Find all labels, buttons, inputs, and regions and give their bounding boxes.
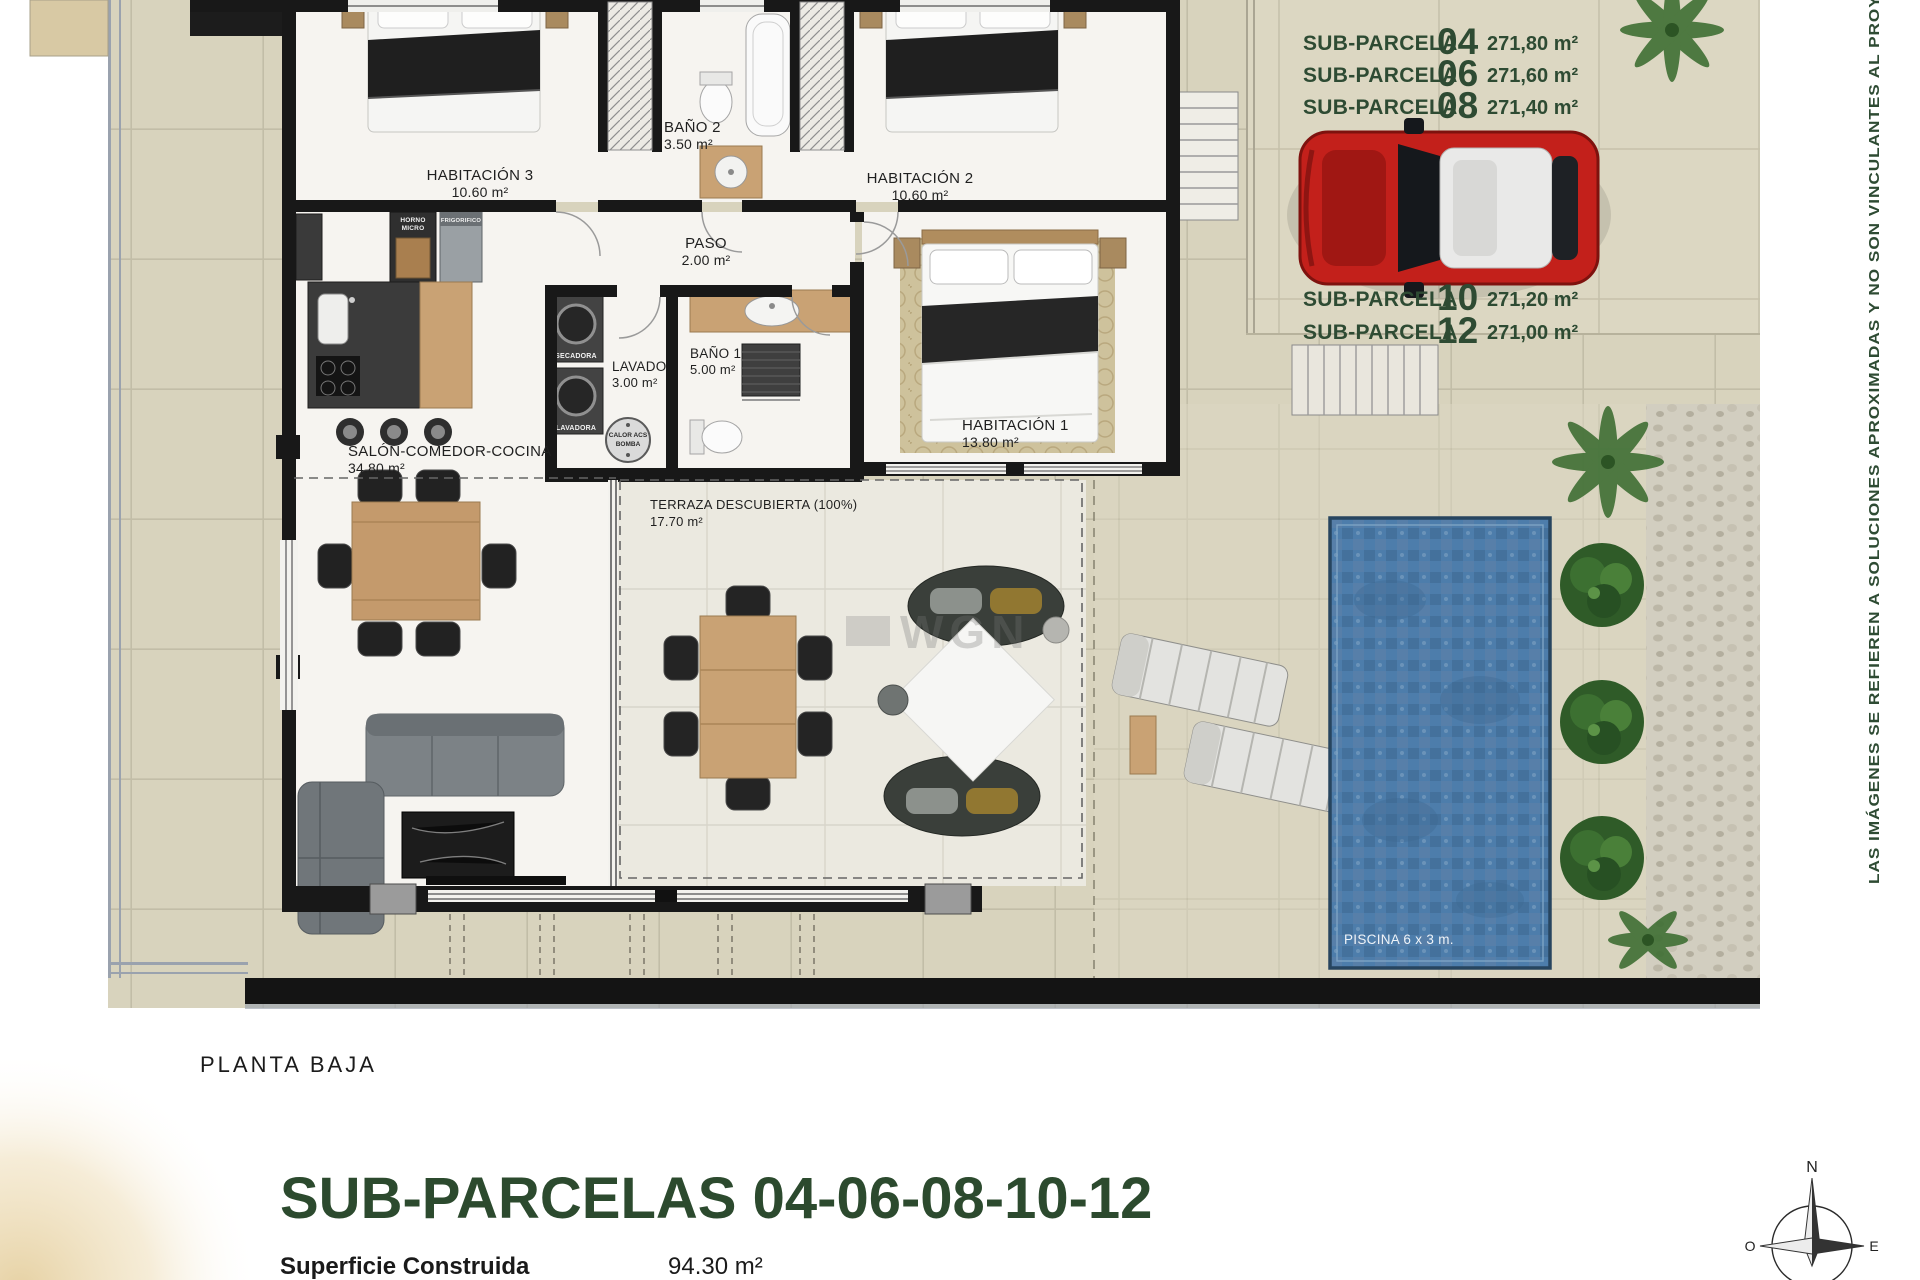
wall-right: [1166, 0, 1180, 476]
dining-chair: [482, 544, 516, 588]
sink: [745, 296, 799, 326]
dining-table: [352, 502, 480, 620]
car-rear-window: [1552, 156, 1578, 260]
dining-chair: [358, 622, 402, 656]
subparcela-label: SUB-PARCELA: [1303, 64, 1458, 87]
nightstand: [894, 238, 920, 268]
lounger-side-table: [1130, 716, 1156, 774]
outdoor-chair: [726, 776, 770, 810]
subparcela-num: 08: [1437, 85, 1478, 126]
subparcela-area: 271,80 m²: [1487, 33, 1579, 55]
label-salon: SALÓN-COMEDOR-COCINA: [348, 443, 552, 460]
heat-pump-label-2: BOMBA: [616, 441, 641, 448]
subparcela-area: 271,00 m²: [1487, 322, 1579, 344]
compass-west: O: [1745, 1238, 1756, 1254]
outdoor-chair: [664, 636, 698, 680]
bush: [1560, 543, 1644, 627]
tv: [426, 876, 566, 885]
subparcela-area: 271,20 m²: [1487, 289, 1579, 311]
toilet: [702, 421, 742, 453]
dryer-label: SECADORA: [555, 353, 597, 360]
area-hab3: 10.60 m²: [452, 184, 509, 200]
toilet: [700, 81, 732, 123]
bed-hab2: [860, 0, 1086, 132]
headboard: [922, 230, 1098, 244]
dining-chair: [318, 544, 352, 588]
surface-label: Superficie Construida: [280, 1253, 530, 1280]
label-bano2: BAÑO 2: [664, 119, 721, 136]
subparcela-label: SUB-PARCELA: [1303, 288, 1458, 311]
outdoor-chair: [798, 636, 832, 680]
side-table: [1043, 617, 1069, 643]
area-paso: 2.00 m²: [682, 252, 731, 268]
car: [1287, 118, 1611, 299]
porch-pillar: [925, 884, 971, 914]
outdoor-table: [700, 616, 796, 778]
subparcela-label: SUB-PARCELA: [1303, 96, 1458, 119]
label-terraza: TERRAZA DESCUBIERTA (100%): [650, 497, 857, 512]
corner-gradient: [0, 1050, 260, 1280]
area-terraza: 17.70 m²: [650, 514, 703, 529]
plan-name: PLANTA BAJA: [200, 1052, 377, 1077]
breakfast-bar: [420, 282, 472, 408]
outdoor-chair: [726, 586, 770, 620]
oven-label-1: HORNO: [400, 217, 425, 224]
compass: N O E: [1745, 1159, 1879, 1280]
island-sink: [318, 294, 348, 344]
label-bano1: BAÑO 1: [690, 346, 741, 361]
wardrobe-hab2: [800, 2, 844, 150]
hob: [316, 356, 360, 396]
blanket: [886, 30, 1058, 98]
outdoor-chair: [798, 712, 832, 756]
heat-pump-label-1: CALOR ACS: [609, 432, 648, 439]
bar-stools: [336, 418, 452, 446]
neighbour-plan-fragment: [30, 0, 108, 56]
bush: [1560, 816, 1644, 900]
porch-pillar: [370, 884, 416, 914]
subparcela-label: SUB-PARCELA: [1303, 32, 1458, 55]
fridge-label: FRIGORIFICO: [441, 218, 481, 224]
label-paso: PASO: [685, 235, 727, 252]
floor-plan-canvas: SECADORA LAVADORA CALOR ACS BOMBA HORNO …: [0, 0, 1920, 1280]
compass-north: N: [1806, 1159, 1818, 1176]
dining-chair: [416, 470, 460, 504]
subparcela-area: 271,60 m²: [1487, 65, 1579, 87]
pool-label: PISCINA 6 x 3 m.: [1344, 932, 1454, 947]
watermark-text: WGN: [900, 606, 1030, 658]
washer-label: LAVADORA: [556, 425, 596, 432]
label-hab2: HABITACIÓN 2: [867, 170, 974, 187]
compass-east: E: [1869, 1238, 1878, 1254]
area-salon: 34.80 m²: [348, 460, 405, 476]
bed-hab3: [342, 0, 568, 132]
area-bano2: 3.50 m²: [664, 136, 713, 152]
tall-oven-unit: [296, 214, 322, 280]
area-bano1: 5.00 m²: [690, 362, 736, 377]
label-hab1: HABITACIÓN 1: [962, 417, 1069, 434]
bush: [1560, 680, 1644, 764]
outdoor-chair: [664, 712, 698, 756]
disclaimer-vertical-text: LAS IMÁGENES SE REFIEREN A SOLUCIONES AP…: [1866, 0, 1883, 884]
mullion: [655, 890, 677, 902]
stairs-right: [1292, 345, 1438, 415]
plot-border-left: [108, 0, 111, 978]
subparcela-num: 12: [1437, 310, 1478, 351]
label-lavado: LAVADO: [612, 359, 667, 374]
oven-label-2: MICRO: [402, 225, 425, 232]
glass-wall-living-terrace: [608, 480, 618, 886]
car-mirror: [1404, 118, 1424, 134]
pillow: [1014, 250, 1092, 284]
surface-value: 94.30 m²: [668, 1253, 763, 1280]
subparcela-label: SUB-PARCELA: [1303, 321, 1458, 344]
car-windshield: [1398, 144, 1440, 272]
plot-border-bottom: [245, 978, 1760, 1004]
gravel-strip: [1646, 404, 1760, 978]
subparcela-area: 271,40 m²: [1487, 97, 1579, 119]
area-lavado: 3.00 m²: [612, 375, 658, 390]
label-hab3: HABITACIÓN 3: [427, 167, 534, 184]
wardrobe-hab3: [608, 2, 652, 150]
footer: PLANTA BAJA SUB-PARCELAS 04-06-08-10-12 …: [200, 1052, 1152, 1280]
nightstand: [1100, 238, 1126, 268]
pool: PISCINA 6 x 3 m.: [1330, 518, 1550, 968]
area-hab1: 13.80 m²: [962, 434, 1019, 450]
coffee-table: [402, 812, 514, 878]
palm-pool-top: [1552, 406, 1664, 518]
pillow: [930, 250, 1008, 284]
stool: [878, 685, 908, 715]
blanket: [368, 30, 540, 98]
area-hab2: 10.60 m²: [892, 187, 949, 203]
page-title: SUB-PARCELAS 04-06-08-10-12: [280, 1166, 1152, 1231]
car-hood: [1322, 150, 1386, 266]
dining-chair: [416, 622, 460, 656]
